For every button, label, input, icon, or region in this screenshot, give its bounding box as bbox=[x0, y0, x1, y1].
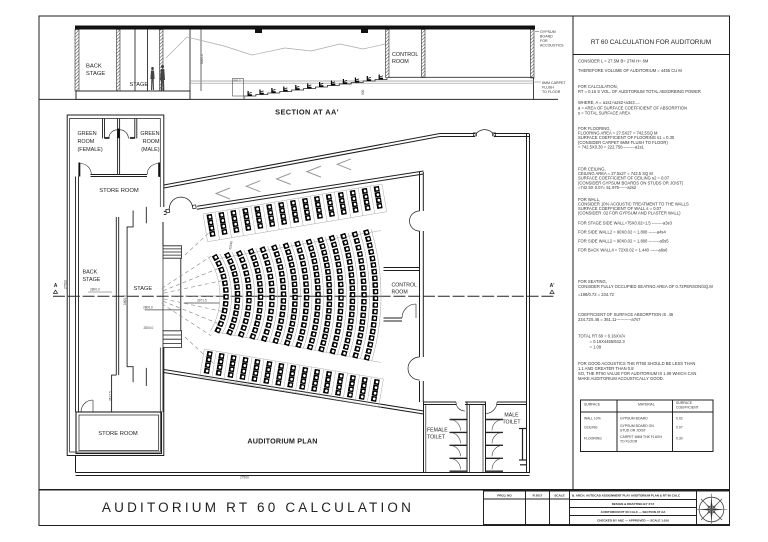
svg-text:(MALE): (MALE) bbox=[141, 147, 159, 153]
svg-text:234.72X.46 = 361.11-----------: 234.72X.46 = 361.11-----------a7s7 bbox=[578, 317, 641, 322]
svg-text:A: A bbox=[54, 283, 58, 289]
svg-text:CHECKED BY ABC — APPROVED — SC: CHECKED BY ABC — APPROVED — SCALE 1:100 bbox=[597, 519, 669, 523]
svg-text:MATERIAL: MATERIAL bbox=[638, 403, 655, 407]
svg-text:(FEMALE): (FEMALE) bbox=[78, 147, 103, 153]
svg-text:TO FLOOR: TO FLOOR bbox=[542, 90, 561, 94]
svg-text:0.30: 0.30 bbox=[676, 437, 683, 441]
svg-text:RT 60 CALCULATION FOR AUDITORI: RT 60 CALCULATION FOR AUDITORIUM bbox=[591, 39, 711, 46]
svg-text:TOILET: TOILET bbox=[427, 435, 446, 441]
svg-text:SURFACE: SURFACE bbox=[676, 401, 693, 405]
svg-text:CARPET 6MM THK FLUSH: CARPET 6MM THK FLUSH bbox=[620, 435, 662, 439]
svg-text:STAGE: STAGE bbox=[134, 286, 153, 292]
svg-text:FLOORING: FLOORING bbox=[584, 437, 602, 441]
svg-text:0.07: 0.07 bbox=[676, 426, 683, 430]
svg-text:2800.0: 2800.0 bbox=[90, 288, 100, 292]
svg-text:BACK: BACK bbox=[86, 64, 102, 70]
svg-text:WALL 10%: WALL 10% bbox=[584, 417, 601, 421]
svg-text:BACK: BACK bbox=[83, 270, 98, 276]
svg-text:3971.5: 3971.5 bbox=[197, 299, 207, 303]
svg-text:ROOM: ROOM bbox=[143, 139, 160, 145]
svg-text:3197.5: 3197.5 bbox=[109, 391, 113, 401]
svg-text:DESIGN & DRAFTING BY XYZ: DESIGN & DRAFTING BY XYZ bbox=[612, 502, 655, 506]
svg-text:TO FLOOR: TO FLOOR bbox=[620, 440, 638, 444]
svg-text:STORE ROOM: STORE ROOM bbox=[98, 431, 138, 437]
svg-text:TOILET: TOILET bbox=[502, 420, 521, 426]
svg-text:GYPSUM BOARD ON: GYPSUM BOARD ON bbox=[620, 424, 654, 428]
svg-text:TOTAL RT 60 = 0.16XV/A: TOTAL RT 60 = 0.16XV/A bbox=[578, 334, 626, 339]
svg-text:CONTROL: CONTROL bbox=[392, 52, 418, 58]
svg-text:AUDITORIUM RT 60 CALCULATION: AUDITORIUM RT 60 CALCULATION bbox=[102, 500, 414, 515]
svg-text:STAGE: STAGE bbox=[83, 277, 101, 283]
svg-text:PROJ. NO: PROJ. NO bbox=[497, 494, 512, 498]
svg-text:SECTION AT AA': SECTION AT AA' bbox=[275, 108, 339, 117]
svg-text:2800.0: 2800.0 bbox=[144, 326, 154, 330]
svg-text:STORE ROOM: STORE ROOM bbox=[99, 188, 139, 194]
svg-text:ROOM: ROOM bbox=[392, 59, 409, 65]
svg-text:ROOM: ROOM bbox=[78, 139, 95, 145]
svg-text:STAGE: STAGE bbox=[130, 82, 149, 88]
svg-text:COEFFICIENT: COEFFICIENT bbox=[676, 406, 699, 410]
svg-text:STUD OR JOIST: STUD OR JOIST bbox=[620, 429, 646, 433]
svg-text:2800.0: 2800.0 bbox=[143, 306, 153, 310]
svg-text:900: 900 bbox=[361, 89, 365, 95]
svg-text:WHERE, A = a1s1+a2s2+a3s3.....: WHERE, A = a1s1+a2s2+a3s3..... bbox=[578, 100, 640, 105]
svg-text:FOR STAGE SIDE WALL=75X0.02=1.: FOR STAGE SIDE WALL=75X0.02=1.5 --------… bbox=[578, 221, 673, 226]
svg-text:800.0: 800.0 bbox=[234, 79, 241, 83]
svg-text:=198/0.72 = 234.72: =198/0.72 = 234.72 bbox=[578, 292, 615, 297]
svg-text:ACCOUSTICS: ACCOUSTICS bbox=[540, 44, 564, 48]
svg-text:CEILING: CEILING bbox=[584, 426, 598, 430]
svg-text:MAKE AUDITORIUM ACOUSTICALLY G: MAKE AUDITORIUM ACOUSTICALLY GOOD. bbox=[578, 376, 664, 381]
svg-text:FOR BACK WALL4 = 72X0.02 = 1.4: FOR BACK WALL4 = 72X0.02 = 1.440 ------a… bbox=[578, 247, 668, 252]
svg-text:SCALE: SCALE bbox=[554, 494, 564, 498]
svg-text:B. ARCH. AUTOCAD ASSIGNMENT PL: B. ARCH. AUTOCAD ASSIGNMENT PLAY AUDITOR… bbox=[572, 494, 681, 498]
svg-text:CONSIDER L = 27.5M B= 27M H=: CONSIDER L = 27.5M B= 27M H= 6M bbox=[578, 59, 649, 64]
svg-text:27500: 27500 bbox=[64, 280, 68, 289]
svg-text:GYPSUM BOARD: GYPSUM BOARD bbox=[620, 417, 648, 421]
svg-text:6MM CARPET: 6MM CARPET bbox=[542, 81, 566, 85]
svg-text:AUDITORIUM RT 60 CALC — SECTIO: AUDITORIUM RT 60 CALC — SECTION AT AA bbox=[601, 510, 667, 514]
svg-text:MALE: MALE bbox=[504, 413, 519, 419]
svg-text:GREEN: GREEN bbox=[78, 131, 97, 137]
svg-text:STAGE: STAGE bbox=[86, 71, 105, 77]
svg-text:FEMALE: FEMALE bbox=[427, 428, 448, 434]
svg-text:0.02: 0.02 bbox=[676, 417, 683, 421]
svg-text:CONTROL: CONTROL bbox=[392, 283, 417, 289]
svg-text:= 1.09: = 1.09 bbox=[578, 345, 602, 350]
svg-text:FLUSH: FLUSH bbox=[542, 86, 554, 90]
svg-text:GYPSUM: GYPSUM bbox=[540, 30, 556, 34]
svg-text:= 742.5X0.30 = 222.750--------: = 742.5X0.30 = 222.750---------a1s1 bbox=[578, 144, 645, 149]
svg-text:AUDITORIUM PLAN: AUDITORIUM PLAN bbox=[247, 437, 317, 446]
svg-text:ROOM: ROOM bbox=[392, 290, 408, 296]
svg-text:FOR SIDE WALL2 = 90X0.02 = 1.8: FOR SIDE WALL2 = 90X0.02 = 1.800 ------a… bbox=[578, 229, 666, 234]
svg-text:= 0.16X4455/642.3: = 0.16X4455/642.3 bbox=[578, 339, 625, 344]
svg-text:27500: 27500 bbox=[240, 476, 249, 480]
svg-text:(CONSIDER .02 FOR GYPSUM AND P: (CONSIDER .02 FOR GYPSUM AND PLASTER WAL… bbox=[578, 211, 681, 216]
svg-text:s = TOTAL SURFACE AREA: s = TOTAL SURFACE AREA bbox=[578, 111, 631, 116]
svg-text:BOARD: BOARD bbox=[540, 35, 553, 39]
svg-text:R 2017: R 2017 bbox=[533, 494, 543, 498]
svg-text:RT = 0.16 S VOL. OF AUDITORIUM: RT = 0.16 S VOL. OF AUDITORIUM TOTAL ABS… bbox=[578, 89, 701, 94]
svg-text:CONSIDER FULLY OCCUPIED SEATIN: CONSIDER FULLY OCCUPIED SEATING AREA OF … bbox=[578, 284, 713, 289]
svg-text:GREEN: GREEN bbox=[140, 131, 159, 137]
svg-text:=742.5X 0.07= 51.975------a2s2: =742.5X 0.07= 51.975------a2s2 bbox=[578, 185, 637, 190]
svg-text:THEREFORE VOLUME OF AUDITORIUM: THEREFORE VOLUME OF AUDITORIUM = 4455 CU… bbox=[578, 68, 682, 73]
svg-text:FOR: FOR bbox=[540, 39, 548, 43]
svg-text:6000.0: 6000.0 bbox=[200, 54, 204, 64]
svg-text:FOR SIDE WALL2 = 90X0.02 = 1.8: FOR SIDE WALL2 = 90X0.02 = 1.800 -------… bbox=[578, 238, 669, 243]
svg-text:SURFACE: SURFACE bbox=[584, 403, 601, 407]
svg-text:A': A' bbox=[550, 283, 555, 289]
